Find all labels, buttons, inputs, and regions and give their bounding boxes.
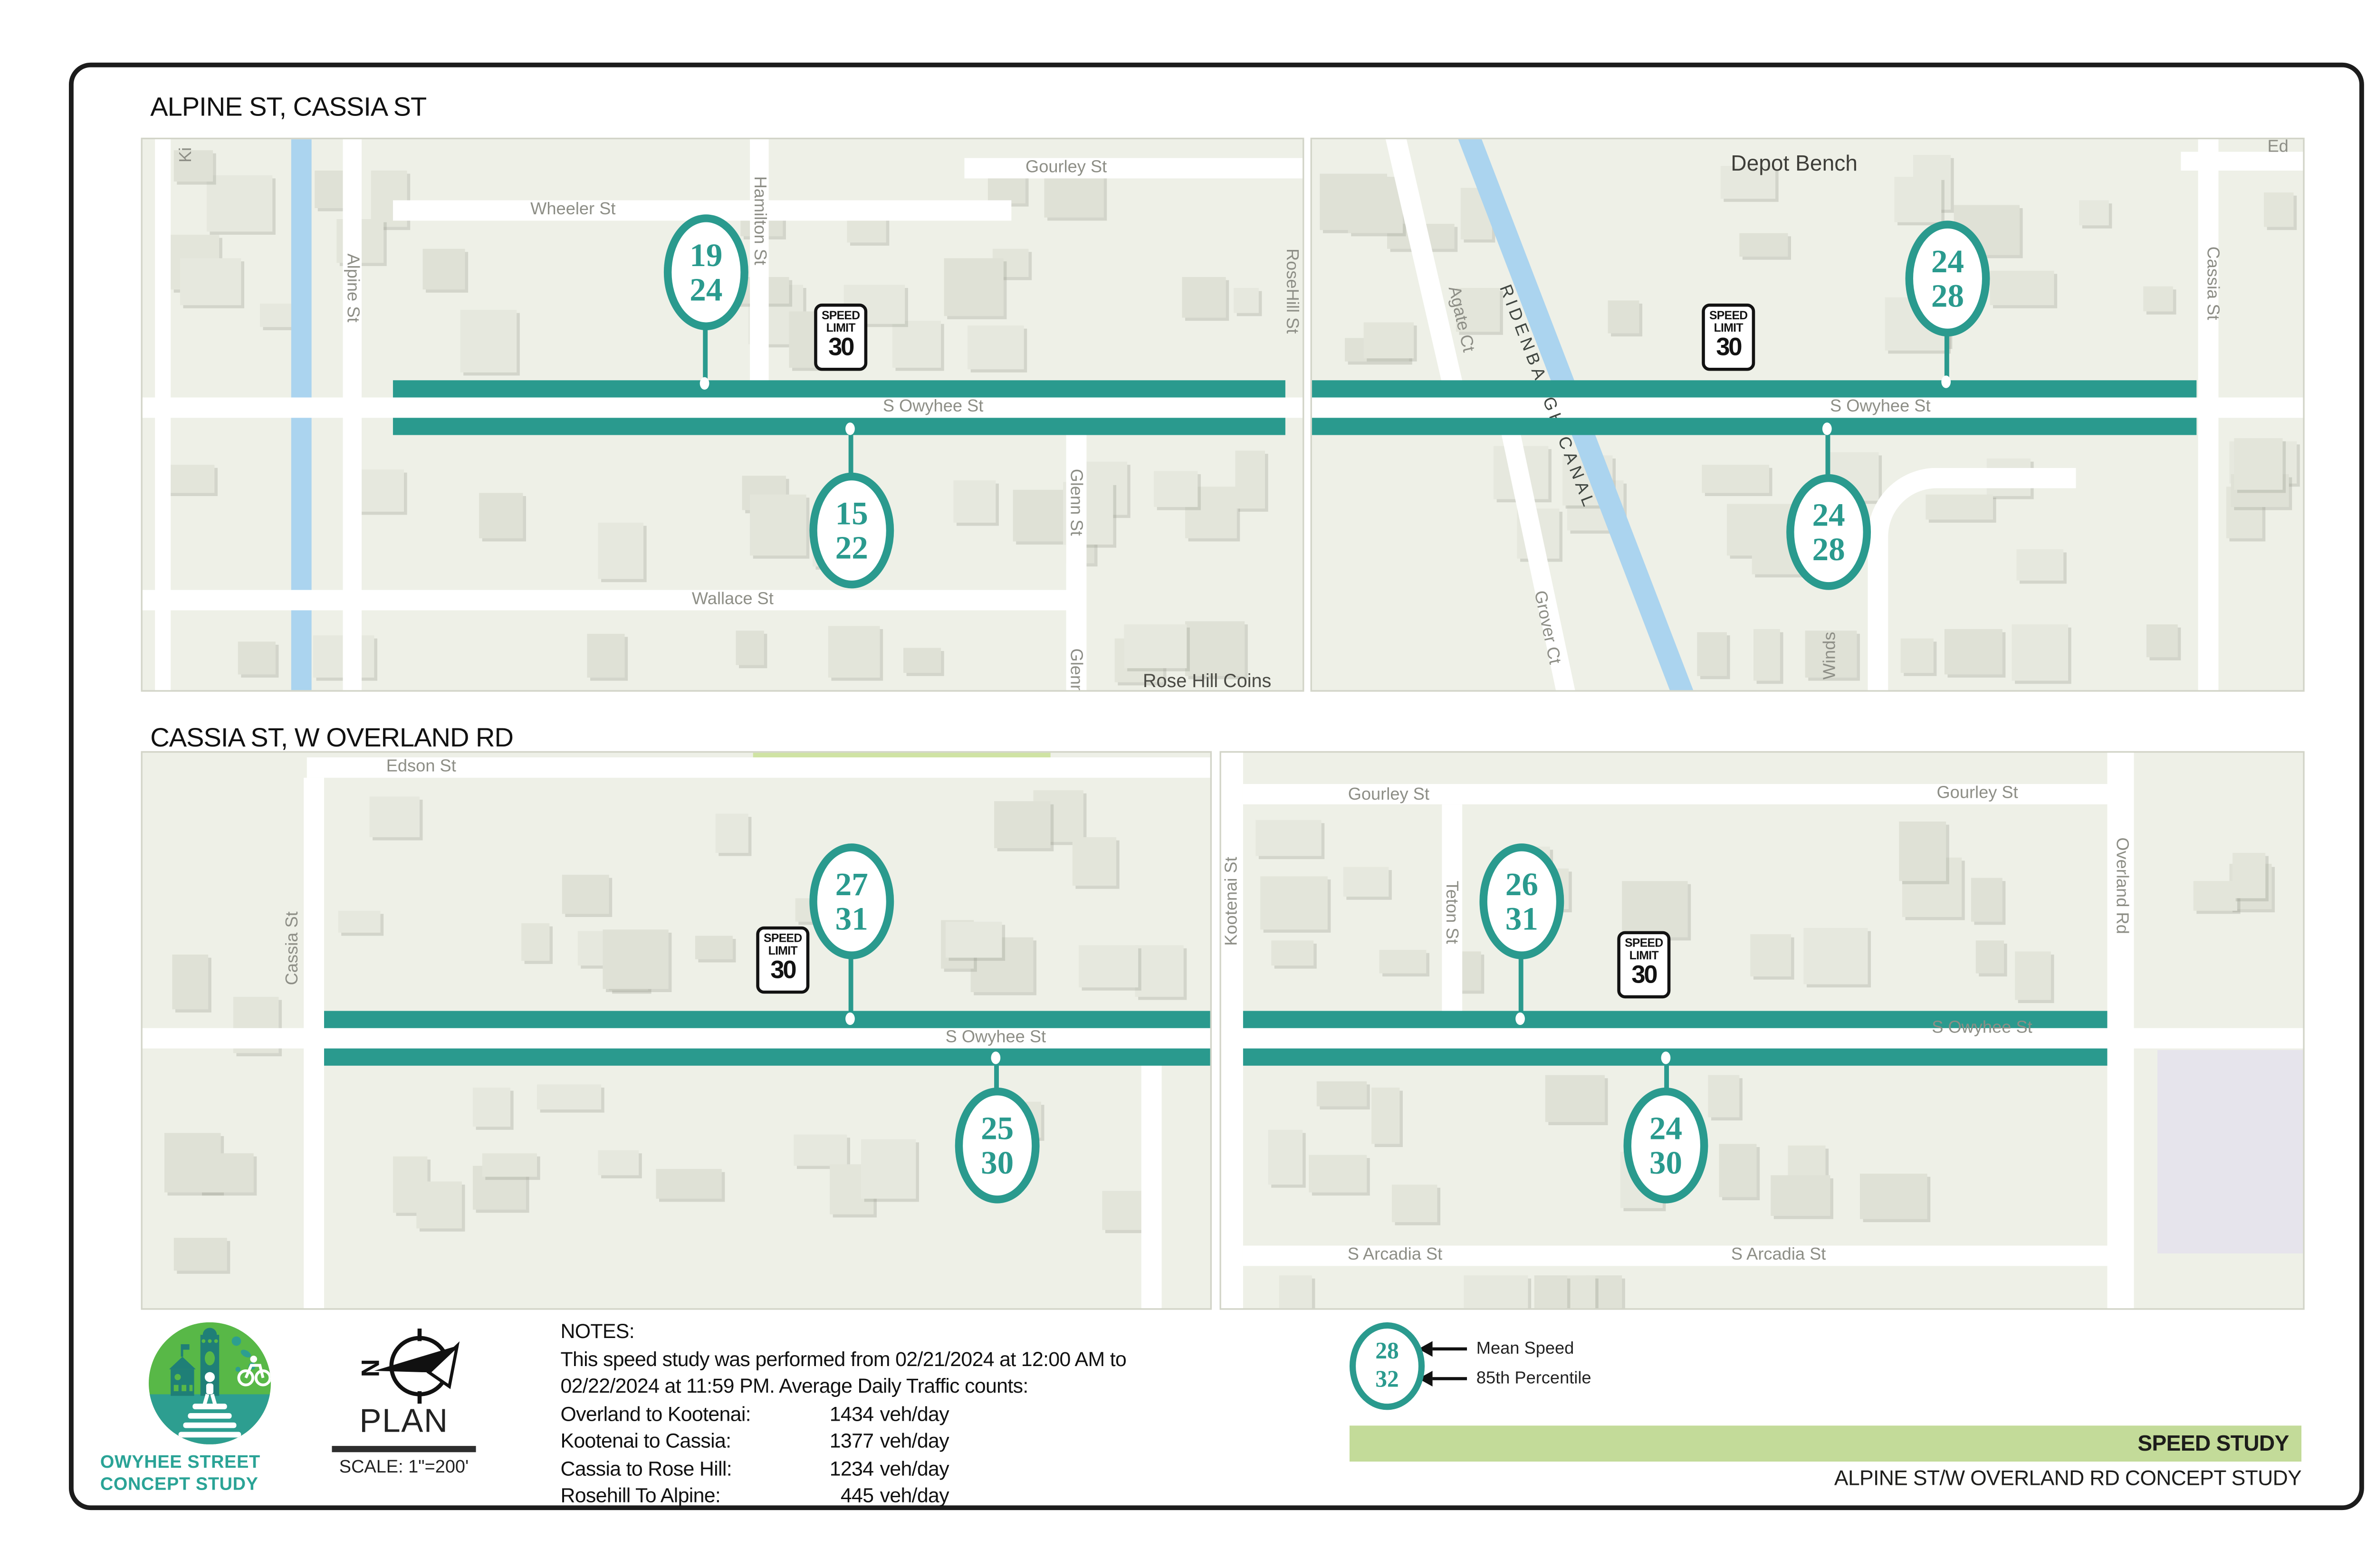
building (1233, 288, 1258, 312)
building (994, 802, 1050, 849)
building (1464, 1275, 1527, 1310)
callout-leader (994, 1062, 999, 1090)
callout-dot (1661, 1052, 1671, 1064)
logo-title-line2: CONCEPT STUDY (100, 1474, 319, 1496)
study-segment-bar (393, 418, 1285, 435)
street-label-s-owyhee: S Owyhee St (1830, 398, 1931, 417)
building (1124, 624, 1187, 668)
adt-unit: veh/day (880, 1427, 949, 1455)
street-label-ed: Ed (2267, 138, 2288, 157)
title-banner-text: SPEED STUDY (2137, 1425, 2289, 1462)
building (173, 1238, 227, 1272)
plan-rule (332, 1446, 476, 1452)
building (603, 929, 669, 989)
building (1392, 1184, 1437, 1222)
callout-dot (1515, 1013, 1525, 1025)
building (2193, 881, 2237, 911)
building (1261, 876, 1328, 930)
p85-speed-value: 22 (835, 530, 868, 565)
building (892, 321, 941, 368)
p85-speed-value: 24 (690, 272, 722, 307)
building (473, 1087, 511, 1127)
building (2144, 286, 2173, 312)
building (1012, 490, 1072, 541)
adt-label: Kootenai to Cassia: (560, 1427, 811, 1455)
map-tile-alpine: Ki Alpine St Hamilton St Wheeler St Gour… (141, 138, 1304, 692)
street-label-winds: Winds (1821, 632, 1840, 680)
building (1278, 1275, 1312, 1310)
adt-row: Kootenai to Cassia: 1377 veh/day (560, 1427, 1312, 1455)
building (1895, 177, 1941, 222)
adt-label: Cassia to Rose Hill: (560, 1454, 811, 1482)
building (1718, 1144, 1757, 1196)
building (1185, 621, 1244, 676)
street-label-kootenai: Kootenai St (1223, 857, 1242, 946)
plan-scale: SCALE: 1"=200' (294, 1458, 513, 1477)
building (237, 642, 276, 674)
building (1267, 1130, 1303, 1185)
study-segment-bar (324, 1011, 1210, 1028)
building (1348, 177, 1404, 232)
road-wallace-st (143, 590, 1082, 611)
building (1708, 1076, 1739, 1118)
building (1379, 949, 1426, 973)
logo-title-line1: OWYHEE STREET (100, 1452, 319, 1474)
callout-leader (1519, 956, 1523, 1014)
road-s-owyhee-st (1312, 398, 2303, 418)
adt-row: Overland to Kootenai: 1434 veh/day (560, 1400, 1312, 1427)
adt-unit: veh/day (880, 1454, 949, 1482)
p85-arrow-line (1433, 1377, 1467, 1380)
logo-title: OWYHEE STREET CONCEPT STUDY (100, 1452, 319, 1496)
street-label-rosehill: RoseHill St (1282, 249, 1301, 334)
title-banner: SPEED STUDY (1350, 1425, 2301, 1462)
building (180, 258, 241, 305)
callout-dot (845, 1013, 855, 1025)
building (598, 523, 644, 578)
map-tile-overland: Kootenai St Gourley St Gourley St Teton … (1219, 751, 2304, 1310)
building (1703, 464, 1769, 493)
street-label-edson: Edson St (386, 757, 456, 776)
building (369, 796, 419, 837)
notes-body-line1: This speed study was performed from 02/2… (560, 1345, 1312, 1373)
street-label-s-arcadia: S Arcadia St (1731, 1246, 1826, 1265)
panel1-title: ALPINE ST, CASSIA ST (150, 92, 426, 124)
building (168, 464, 214, 493)
speed-callout: 19 24 (664, 214, 748, 330)
building (1608, 300, 1639, 334)
building (1990, 271, 2054, 305)
building (1317, 1080, 1367, 1107)
callout-leader (1826, 435, 1830, 478)
building (903, 648, 941, 673)
building (172, 954, 208, 1008)
callout-dot (700, 377, 709, 390)
building (1696, 633, 1727, 677)
p85-speed-value: 30 (981, 1146, 1014, 1180)
p85-speed-value: 28 (1812, 532, 1845, 567)
building (1535, 1275, 1568, 1310)
study-segment-bar (1312, 380, 2196, 397)
road-s-owyhee-st (143, 1028, 1210, 1049)
building (2264, 192, 2294, 227)
speed-limit-sign: SPEED LIMIT 30 (1702, 304, 1755, 370)
adt-row: Rosehill To Alpine: 445 veh/day (560, 1482, 1312, 1510)
notes-heading: NOTES: (560, 1318, 1312, 1345)
building (735, 631, 765, 665)
p85-speed-value: 30 (1649, 1146, 1682, 1180)
owyhee-logo-icon (149, 1322, 271, 1444)
building (521, 923, 549, 961)
building (339, 910, 380, 932)
area-label-depot-bench: Depot Bench (1731, 150, 1858, 175)
building (750, 495, 806, 555)
mean-speed-value: 24 (1812, 497, 1845, 532)
building (953, 480, 996, 522)
building (2079, 201, 2109, 226)
street-label-gourley: Gourley St (1025, 158, 1107, 177)
mean-speed-value: 27 (835, 867, 868, 901)
road-windsor (1868, 468, 2076, 692)
building (1803, 928, 1868, 984)
building (460, 309, 517, 372)
svg-text:N: N (357, 1359, 384, 1377)
adt-value: 1434 (811, 1400, 874, 1427)
road-s-owyhee-st (1221, 1028, 2303, 1049)
building (562, 875, 609, 913)
legend-speed-callout: 28 32 (1350, 1322, 1425, 1410)
building (1364, 322, 1414, 359)
street-label-hamilton: Hamilton St (750, 176, 769, 265)
speed-callout: 15 22 (809, 473, 894, 589)
street-label-ki: Ki (177, 147, 196, 163)
building (943, 258, 1004, 316)
callout-leader (849, 956, 853, 1014)
street-label-glenn-st: Glenn St (1066, 469, 1085, 536)
adt-row: Cassia to Rose Hill: 1234 veh/day (560, 1454, 1312, 1482)
street-label-s-owyhee: S Owyhee St (1932, 1019, 2032, 1038)
building (1371, 1088, 1400, 1144)
adt-value: 445 (811, 1482, 874, 1510)
building (598, 1150, 638, 1175)
speed-limit-sign: SPEED LIMIT 30 (756, 927, 809, 993)
building (2232, 853, 2266, 899)
building (715, 814, 749, 853)
p85-speed-value: 31 (1505, 901, 1538, 936)
building (537, 1084, 602, 1109)
map-tile-cassia-west: Edson St Cassia St S Owyhee St SPEED LIM… (141, 751, 1212, 1310)
mean-speed-value: 24 (1649, 1111, 1682, 1146)
building (1271, 940, 1314, 965)
building (967, 325, 1024, 370)
map-tile-cassia: RIDENBAUGH CANAL Agate Ct Depot Bench Gr… (1311, 138, 2305, 692)
speed-callout: 24 28 (1906, 220, 1990, 336)
building (1235, 450, 1265, 508)
building (482, 1154, 537, 1177)
parking-area (2157, 1050, 2303, 1253)
building (587, 634, 625, 678)
road-s-owyhee-st (143, 398, 1303, 418)
mean-speed-arrow-line (1433, 1348, 1467, 1351)
study-segment-bar (1243, 1049, 2108, 1066)
street-label-s-arcadia: S Arcadia St (1348, 1246, 1442, 1265)
building (656, 1169, 721, 1198)
building (358, 469, 404, 512)
speed-callout: 25 30 (955, 1088, 1040, 1204)
building (417, 1182, 462, 1228)
street-label-overland: Overland Rd (2112, 837, 2131, 934)
north-arrow-icon: N (357, 1324, 473, 1408)
adt-value: 1377 (811, 1427, 874, 1455)
mean-speed-value: 25 (981, 1111, 1014, 1146)
street-label-alpine: Alpine St (343, 253, 362, 322)
street-label-s-owyhee: S Owyhee St (946, 1028, 1046, 1047)
street-label-cassia: Cassia St (283, 911, 302, 985)
mean-speed-value: 26 (1505, 867, 1538, 901)
building (1545, 1075, 1605, 1123)
building (1072, 837, 1117, 886)
speed-limit-sign: SPEED LIMIT 30 (1617, 931, 1670, 998)
notes-block: NOTES: This speed study was performed fr… (560, 1318, 1312, 1509)
road-gourley-st (964, 158, 1303, 179)
building (423, 249, 466, 290)
building (1182, 277, 1226, 318)
building (1860, 1173, 1928, 1219)
adt-unit: veh/day (880, 1482, 949, 1510)
street-label-wheeler: Wheeler St (530, 201, 615, 220)
building (1972, 877, 2003, 922)
building (1621, 881, 1688, 938)
speed-callout: 24 28 (1786, 474, 1871, 590)
p85-speed-value: 31 (835, 901, 868, 936)
building (694, 936, 732, 959)
p85-speed-value: 28 (1931, 278, 1964, 313)
building (2014, 952, 2051, 1000)
speed-callout: 27 31 (809, 843, 894, 959)
building (1256, 821, 1322, 857)
sheet: ALPINE ST, CASSIA ST Ki Alpine St Hamilt… (0, 0, 2376, 1568)
building (1740, 232, 1787, 257)
plan-label: PLAN (310, 1404, 498, 1441)
legend-p85-label: 85th Percentile (1476, 1369, 1591, 1388)
building (1079, 945, 1138, 987)
building (199, 1154, 253, 1192)
study-segment-bar (324, 1049, 1210, 1066)
street-label-cassia: Cassia St (2203, 247, 2222, 320)
building (1788, 1146, 1825, 1179)
mean-speed-value: 24 (1931, 244, 1964, 279)
speed-callout: 26 31 (1479, 843, 1564, 959)
legend-p85-value: 32 (1375, 1366, 1399, 1394)
callout-dot (1822, 422, 1832, 435)
street-label-wallace: Wallace St (692, 590, 774, 609)
speed-callout: 24 30 (1624, 1088, 1708, 1204)
callout-dot (1941, 375, 1951, 388)
mean-speed-value: 19 (690, 238, 722, 272)
notes-body-line2: 02/22/2024 at 11:59 PM. Average Daily Tr… (560, 1372, 1312, 1400)
panel2-title: CASSIA ST, W OVERLAND RD (150, 723, 513, 755)
speed-limit-sign: SPEED LIMIT 30 (814, 304, 867, 370)
building (207, 176, 272, 231)
street-label-teton: Teton St (1442, 881, 1461, 944)
legend-mean-label: Mean Speed (1476, 1339, 1574, 1358)
building (945, 922, 1002, 958)
building (2234, 439, 2283, 490)
street-label-gourley: Gourley St (1936, 784, 2018, 803)
building (1134, 946, 1183, 997)
road-cassia-st (2198, 139, 2219, 690)
callout-dot (845, 422, 855, 435)
building (1309, 1155, 1368, 1193)
mean-speed-value: 15 (835, 496, 868, 531)
street-label-s-owyhee: S Owyhee St (883, 398, 984, 417)
building (828, 627, 880, 678)
building (794, 1134, 847, 1165)
street-label-gourley: Gourley St (1348, 785, 1429, 804)
study-segment-bar (1312, 418, 2196, 435)
poi-label-rose-hill-coins: Rose Hill Coins (1143, 670, 1271, 692)
building (479, 493, 523, 538)
building (1976, 941, 2003, 974)
callout-leader (1664, 1062, 1669, 1090)
building (2146, 625, 2178, 657)
callout-leader (849, 435, 853, 478)
road-minor (1141, 1049, 1162, 1309)
legend-mean-value: 28 (1375, 1338, 1399, 1366)
study-segment-bar (393, 380, 1285, 397)
building (1753, 629, 1779, 681)
building (1771, 1175, 1830, 1216)
building (1899, 821, 1946, 881)
adt-label: Overland to Kootenai: (560, 1400, 811, 1427)
building (1154, 471, 1198, 507)
adt-value: 1234 (811, 1454, 874, 1482)
building (1750, 934, 1791, 976)
callout-dot (991, 1052, 1000, 1064)
adt-unit: veh/day (880, 1400, 949, 1427)
building (1343, 867, 1389, 897)
building (861, 1138, 916, 1199)
adt-label: Rosehill To Alpine: (560, 1482, 811, 1510)
project-title: ALPINE ST/W OVERLAND RD CONCEPT STUDY (1350, 1466, 2301, 1490)
street-label-glenn: Glenn (1066, 649, 1085, 692)
